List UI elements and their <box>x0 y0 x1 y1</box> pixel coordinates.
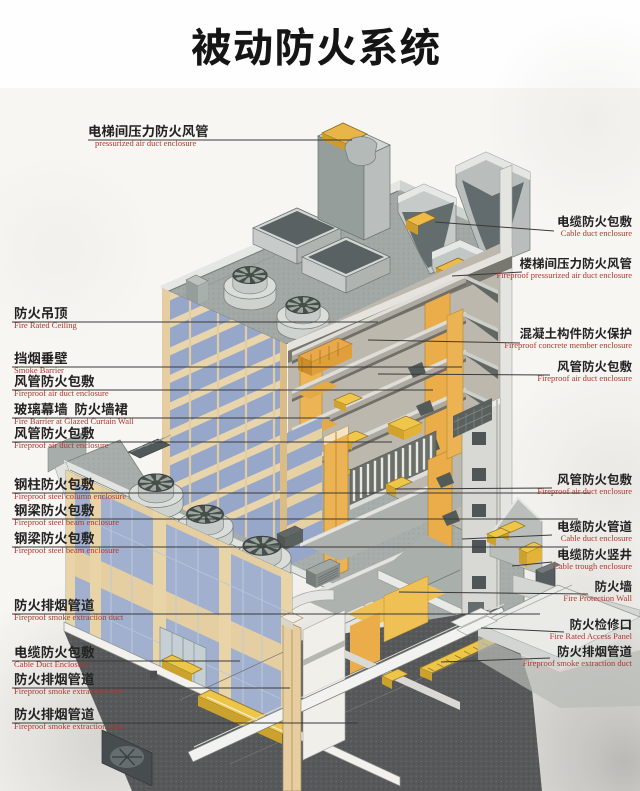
svg-text:Fireproof smoke extraction duc: Fireproof smoke extraction duct <box>14 686 124 696</box>
svg-text:Cable Duct Enclosure: Cable Duct Enclosure <box>14 659 89 669</box>
svg-text:Fireproof air duct enclosure: Fireproof air duct enclosure <box>537 486 632 496</box>
svg-text:Fire Barrier at Glazed Curtain: Fire Barrier at Glazed Curtain Wall <box>14 416 134 426</box>
svg-text:Fireproof smoke extraction duc: Fireproof smoke extraction duct <box>14 612 124 622</box>
svg-text:Fireproof air duct enclosure: Fireproof air duct enclosure <box>14 440 109 450</box>
svg-text:Fireproof steel beam enclosur: Fireproof steel beam enclosure <box>14 517 119 527</box>
svg-text:Cable trough enclosure: Cable trough enclosure <box>553 561 632 571</box>
svg-text:Fireproof steel column enclos: Fireproof steel column enclosure <box>14 491 126 501</box>
svg-text:Cable duct enclosure: Cable duct enclosure <box>561 228 633 238</box>
svg-text:Fire Rated Access Panel: Fire Rated Access Panel <box>550 631 633 641</box>
svg-text:Fireproof concrete member enc: Fireproof concrete member enclosure <box>504 340 632 350</box>
svg-text:Fireproof steel beam enclosur: Fireproof steel beam enclosure <box>14 545 119 555</box>
svg-text:Fireproof air duct enclosure: Fireproof air duct enclosure <box>14 388 109 398</box>
svg-text:Fireproof air duct enclosure: Fireproof air duct enclosure <box>537 373 632 383</box>
svg-text:Fire Protection Wall: Fire Protection Wall <box>563 593 632 603</box>
svg-text:Fire Rated Ceiling: Fire Rated Ceiling <box>14 320 78 330</box>
svg-text:Cable duct enclosure: Cable duct enclosure <box>561 533 633 543</box>
svg-text:Fireproof smoke extraction duc: Fireproof smoke extraction duct <box>14 721 124 731</box>
svg-text:Fireproof pressurized air duct: Fireproof pressurized air duct enclosure <box>497 270 633 280</box>
svg-text:Smoke Barrier: Smoke Barrier <box>14 365 64 375</box>
svg-text:pressurized air duct enclosure: pressurized air duct enclosure <box>95 138 196 148</box>
svg-text:Fireproof smoke extraction duc: Fireproof smoke extraction duct <box>523 658 633 668</box>
